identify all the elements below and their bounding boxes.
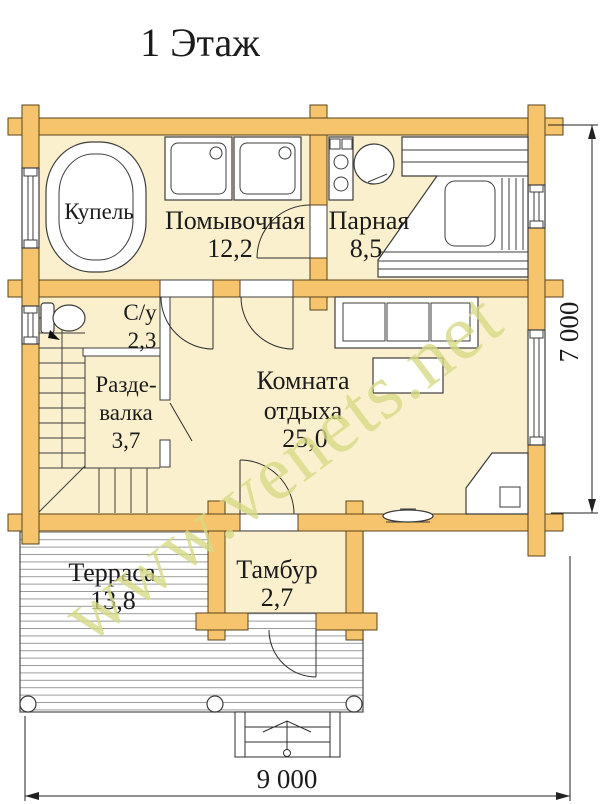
stub-partition-mid	[310, 297, 327, 310]
stub-partition-top	[310, 105, 327, 118]
dimension-width-label: 9 000	[257, 764, 318, 794]
partition-wc-lower	[160, 440, 170, 467]
label-pomyvochnaya-area: 12,2	[207, 234, 253, 263]
label-tambur-area: 2,7	[261, 583, 294, 612]
dimension-height-label: 7 000	[554, 302, 584, 363]
wall-partition-steam-upper	[310, 135, 327, 205]
floor-plan-drawing: 9 000 7 000 1 Этаж Купель Помывочная 12,…	[0, 0, 600, 804]
label-parnaya-area: 8,5	[350, 234, 383, 263]
label-parnaya: Парная	[329, 206, 410, 235]
label-kupel: Купель	[64, 199, 134, 224]
window-left-stairs	[22, 306, 39, 344]
partition-wc-upper	[160, 297, 170, 400]
label-su-area: 2,3	[128, 328, 157, 353]
dimension-height: 7 000	[548, 125, 598, 513]
label-razdevalka-1: Разде-	[95, 372, 156, 397]
stove-tank	[354, 144, 394, 184]
wall-tambour-bottom-1	[196, 613, 248, 630]
wall-tambour-bottom-2	[316, 613, 377, 630]
label-tambur: Тамбур	[236, 555, 317, 584]
shower-tray-1	[165, 137, 232, 200]
wall-partition-steam-lower	[310, 258, 327, 280]
window-right-steamroom	[528, 185, 545, 228]
entrance-steps	[235, 712, 340, 757]
wall-top	[8, 118, 563, 135]
wall-mid-2	[213, 280, 240, 297]
label-razdevalka-area: 3,7	[112, 428, 141, 453]
label-razdevalka-2: валка	[99, 400, 152, 425]
label-su: С/у	[123, 300, 157, 325]
shower-tray-2	[234, 137, 301, 200]
wall-mid-3	[293, 280, 563, 297]
label-pomyvochnaya: Помывочная	[165, 206, 305, 235]
stub-tambour-right-top	[346, 501, 363, 514]
page-title: 1 Этаж	[140, 20, 260, 65]
window-right-restroom	[528, 330, 545, 445]
window-left-washroom	[22, 168, 39, 248]
floor-plan-page: 9 000 7 000 1 Этаж Купель Помывочная 12,…	[0, 0, 600, 804]
